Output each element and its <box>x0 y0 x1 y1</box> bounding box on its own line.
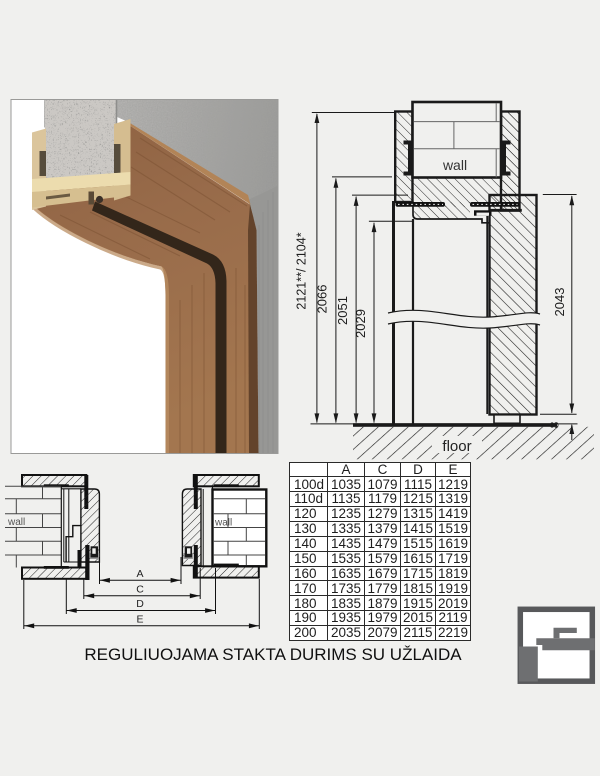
svg-text:2029: 2029 <box>353 309 368 338</box>
svg-text:2051: 2051 <box>335 296 350 325</box>
svg-text:D: D <box>136 598 144 610</box>
svg-text:wall: wall <box>214 518 232 529</box>
svg-text:A: A <box>136 568 143 580</box>
svg-text:E: E <box>136 613 143 625</box>
svg-text:wall: wall <box>7 517 25 528</box>
svg-text:2066: 2066 <box>315 285 330 314</box>
svg-text:C: C <box>136 584 144 596</box>
svg-text:wall: wall <box>442 157 467 173</box>
svg-text:8: 8 <box>548 421 562 428</box>
svg-text:2043: 2043 <box>552 288 567 317</box>
svg-text:floor: floor <box>442 438 471 455</box>
svg-text:2121**/ 2104*: 2121**/ 2104* <box>295 232 309 309</box>
